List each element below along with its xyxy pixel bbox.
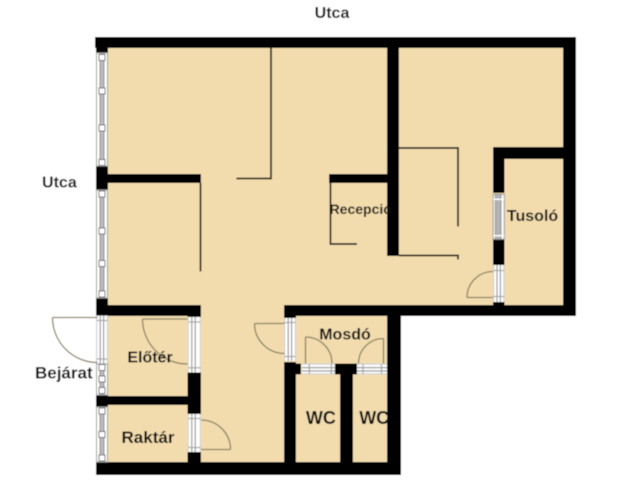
svg-text:Utca: Utca — [42, 175, 77, 192]
svg-text:Bejárat: Bejárat — [35, 364, 93, 383]
svg-text:Recepció: Recepció — [330, 201, 392, 217]
svg-text:Tusoló: Tusoló — [507, 208, 558, 225]
svg-text:Előtér: Előtér — [127, 349, 172, 366]
svg-text:WC: WC — [359, 408, 389, 428]
svg-text:Utca: Utca — [315, 5, 350, 22]
svg-text:WC: WC — [306, 408, 336, 428]
svg-text:Mosdó: Mosdó — [319, 327, 371, 344]
svg-text:Raktár: Raktár — [122, 428, 175, 447]
